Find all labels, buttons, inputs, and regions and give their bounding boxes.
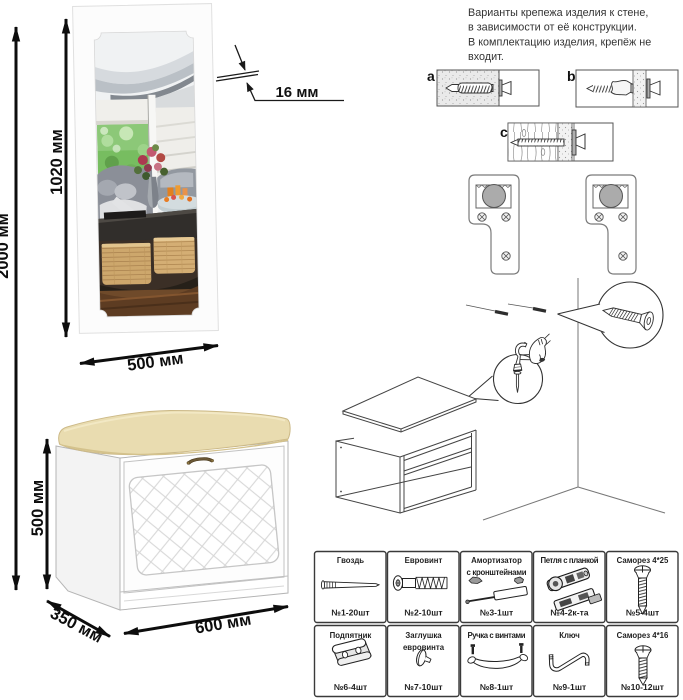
- svg-text:16 мм: 16 мм: [275, 84, 318, 101]
- svg-text:В комплектацию изделия, крепёж: В комплектацию изделия, крепёж не: [468, 36, 651, 48]
- svg-text:b: b: [567, 68, 576, 84]
- svg-text:№2-10шт: №2-10шт: [404, 608, 442, 618]
- svg-text:Ключ: Ключ: [559, 631, 580, 640]
- svg-text:в зависимости от её конструкци: в зависимости от её конструкции.: [468, 22, 637, 34]
- svg-text:500 мм: 500 мм: [29, 480, 47, 537]
- svg-text:входит.: входит.: [468, 51, 504, 63]
- svg-text:с кронштейнами: с кронштейнами: [467, 568, 527, 577]
- svg-text:a: a: [427, 68, 435, 84]
- svg-text:№9-1шт: №9-1шт: [553, 682, 586, 692]
- svg-text:№8-1шт: №8-1шт: [480, 682, 513, 692]
- svg-text:Ручка с винтами: Ручка с винтами: [468, 631, 526, 640]
- svg-text:Саморез 4*25: Саморез 4*25: [617, 556, 669, 565]
- svg-text:Саморез 4*16: Саморез 4*16: [617, 631, 669, 640]
- svg-text:Варианты крепежа изделия к сте: Варианты крепежа изделия к стене,: [468, 7, 648, 19]
- svg-text:2000 мм: 2000 мм: [0, 213, 12, 279]
- svg-text:№6-4шт: №6-4шт: [334, 682, 367, 692]
- svg-text:№1-20шт: №1-20шт: [331, 608, 369, 618]
- svg-text:600 мм: 600 мм: [194, 611, 253, 638]
- svg-text:500 мм: 500 мм: [126, 349, 184, 374]
- svg-text:Заглушка: Заглушка: [405, 631, 442, 640]
- svg-text:Амортизатор: Амортизатор: [471, 556, 522, 565]
- svg-text:№7-10шт: №7-10шт: [404, 682, 442, 692]
- svg-text:1020 мм: 1020 мм: [48, 129, 66, 195]
- svg-text:350 мм: 350 мм: [47, 604, 105, 646]
- svg-text:Гвоздь: Гвоздь: [337, 556, 364, 565]
- svg-text:№3-1шт: №3-1шт: [480, 608, 513, 618]
- svg-text:c: c: [500, 124, 508, 140]
- svg-text:Петля с планкой: Петля с планкой: [541, 556, 599, 565]
- svg-text:Евровинт: Евровинт: [405, 556, 443, 565]
- svg-text:Подпятник: Подпятник: [330, 631, 372, 640]
